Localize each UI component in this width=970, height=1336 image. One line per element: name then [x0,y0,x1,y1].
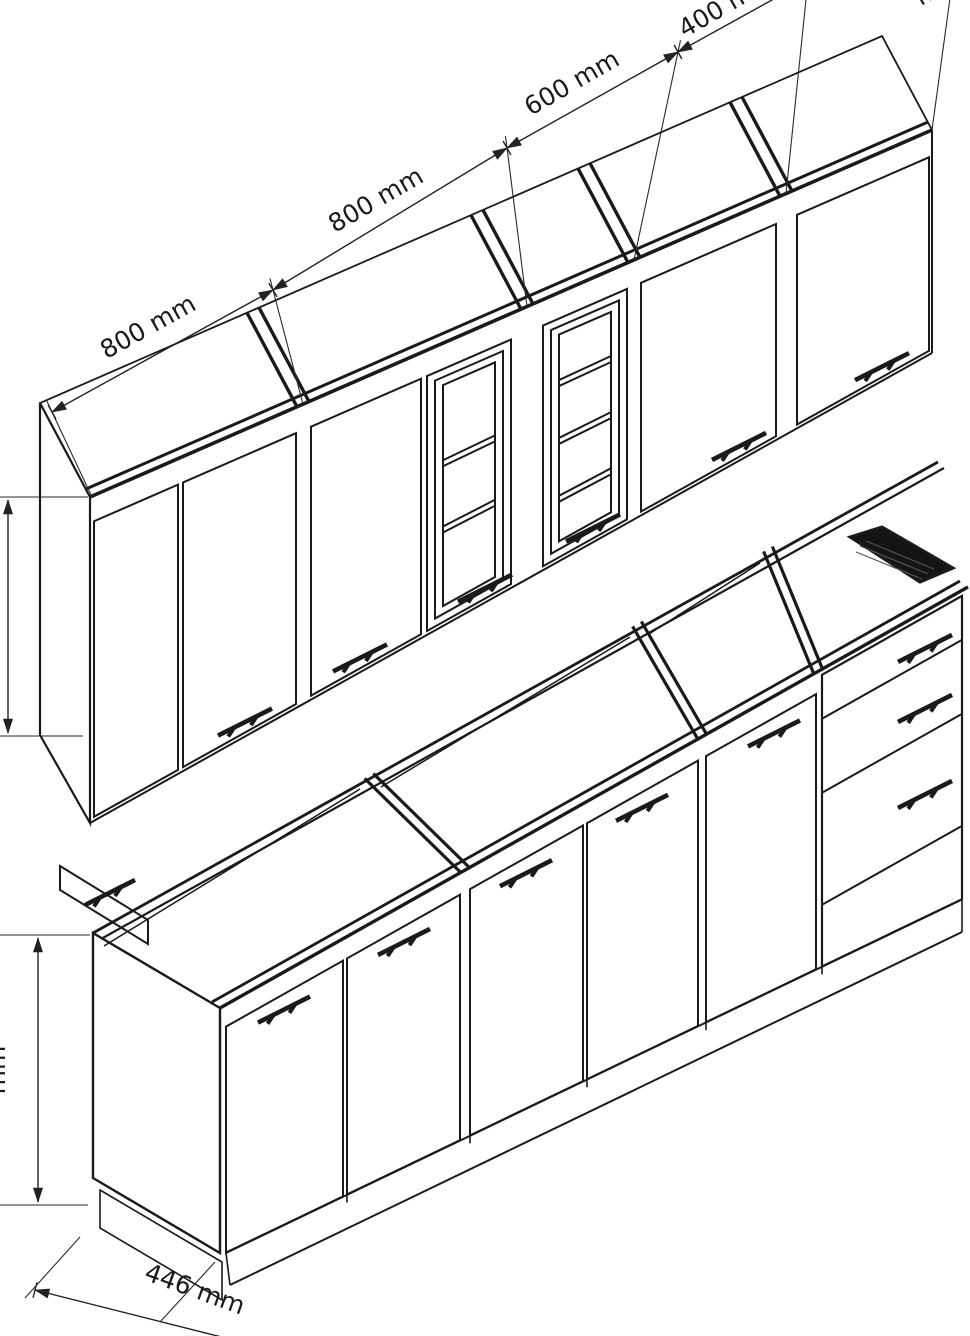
dimension-label-width-5-clipped: mm [909,0,966,11]
dimension-label-width-1: 800 mm [95,289,200,365]
dimension-label-width-3: 600 mm [519,44,624,121]
dimension-label-width-2: 800 mm [323,161,428,238]
cabinet-technical-drawing-page: 800 mm 800 mm 600 mm 400 mm mm 446 mm mm [0,0,970,1336]
cabinet-technical-drawing: 800 mm 800 mm 600 mm 400 mm mm 446 mm mm [0,0,970,1336]
dimension-label-height-clipped: mm [0,1046,11,1095]
dimension-label-depth: 446 mm [141,1258,249,1321]
dimension-label-width-4: 400 mm [673,0,778,43]
line-art-group [0,0,968,1336]
